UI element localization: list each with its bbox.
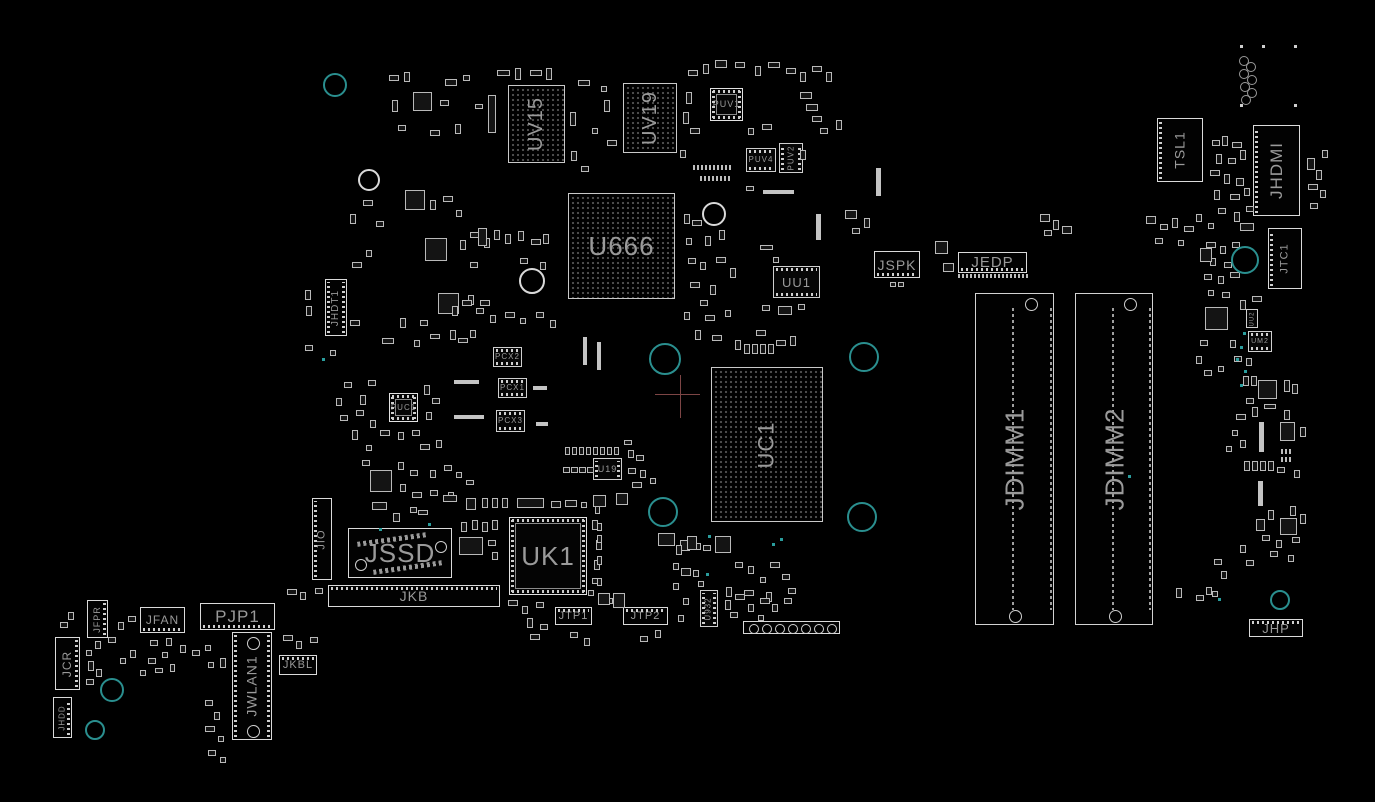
smd-part [1196, 214, 1202, 222]
smd-part [1224, 174, 1230, 184]
component-label: TSL1 [1173, 131, 1187, 168]
origin-crosshair [655, 394, 700, 395]
smd-part [678, 615, 684, 622]
smd-part [588, 590, 594, 596]
smd-part [684, 312, 690, 320]
smd-part [531, 239, 541, 245]
smd-part [776, 340, 786, 346]
origin-crosshair [680, 375, 681, 418]
ssd-screw-hole [435, 541, 447, 553]
smd-part [283, 635, 293, 641]
smd-part [632, 482, 642, 488]
smd-part [715, 536, 731, 553]
smd-part [1214, 190, 1220, 200]
smd-part [773, 257, 779, 263]
component-jdimm1[interactable]: JDIMM1 [975, 293, 1054, 625]
smd-part [1226, 446, 1232, 452]
component-label: JDIMM2 [1101, 408, 1127, 511]
smd-part [480, 300, 490, 306]
smd-part [650, 478, 656, 484]
test-point [1262, 45, 1265, 48]
smd-part [673, 583, 679, 590]
component-label: UV19 [640, 91, 660, 145]
pin-row [67, 700, 70, 735]
smd-part [420, 444, 430, 450]
connector-hole [814, 624, 824, 634]
test-point [1128, 475, 1131, 478]
pin-row [512, 590, 584, 593]
component-pjp1[interactable]: PJP1 [200, 603, 275, 630]
smd-part [826, 72, 832, 82]
smd-part [695, 330, 701, 340]
smd-part [762, 305, 770, 311]
component-pcx3[interactable]: PCX3 [496, 410, 525, 432]
smd-part [470, 262, 478, 268]
smd-part [488, 95, 496, 133]
smd-part [1292, 537, 1300, 543]
smd-part [392, 100, 398, 112]
test-point [1243, 332, 1246, 335]
component-jdimm2[interactable]: JDIMM2 [1075, 293, 1153, 625]
smd-part [1246, 358, 1252, 366]
smd-part [1252, 407, 1258, 417]
smd-part [475, 104, 483, 109]
smd-part [607, 447, 612, 455]
trace-segment [536, 422, 548, 426]
smd-part [698, 581, 704, 587]
component-jcr[interactable]: JCR [55, 637, 80, 690]
smd-part [690, 128, 700, 134]
smd-part [1218, 276, 1224, 284]
smd-part [86, 679, 94, 685]
smd-part [214, 712, 220, 720]
component-label: PUC1 [391, 404, 416, 412]
pin-row [143, 628, 182, 631]
smd-part [1221, 571, 1227, 579]
pin-row [776, 293, 817, 296]
smd-part [1262, 535, 1270, 541]
smd-part [436, 440, 442, 448]
smd-part [305, 290, 311, 300]
component-label: JIO [317, 529, 328, 549]
smd-part [482, 498, 488, 508]
smd-part [812, 116, 822, 122]
test-point [1244, 370, 1247, 373]
smd-part [705, 315, 715, 321]
test-point [379, 528, 382, 531]
smd-part [812, 66, 822, 72]
smd-part [1230, 340, 1236, 348]
component-jhdmi[interactable]: JHDMI [1253, 125, 1300, 216]
smd-part [748, 604, 754, 612]
component-puv1[interactable]: PUV1 [710, 88, 743, 121]
smd-part [581, 502, 587, 508]
smd-part [748, 128, 754, 135]
component-jssd[interactable]: JSSD [348, 528, 452, 578]
smd-part [640, 470, 646, 478]
connector-hole [247, 637, 260, 650]
smd-part [1218, 208, 1226, 214]
smd-part [636, 455, 644, 461]
smd-part [492, 552, 498, 560]
smd-part [350, 320, 360, 326]
smd-part [470, 330, 476, 338]
smd-part [820, 128, 828, 134]
smd-part [613, 593, 625, 608]
component-um2[interactable]: UM2 [1248, 331, 1272, 352]
smd-part [414, 340, 420, 347]
component-uu2[interactable]: UU2 [1246, 309, 1258, 328]
test-point [1240, 346, 1243, 349]
smd-part [1176, 588, 1182, 598]
smd-part [1284, 410, 1290, 420]
smd-part [1294, 470, 1300, 478]
pin-row [1251, 333, 1269, 336]
component-label: PUV1 [713, 100, 741, 109]
mounting-hole [1270, 590, 1290, 610]
smd-part [1232, 142, 1242, 148]
smd-part [330, 350, 336, 356]
smd-part [205, 726, 215, 732]
smd-part [597, 578, 602, 586]
component-u19[interactable]: U19 [593, 458, 622, 480]
smd-part [712, 335, 722, 341]
smd-part [540, 624, 548, 630]
ssd-screw-hole [355, 559, 367, 571]
trace-segment [876, 168, 881, 196]
smd-part [120, 658, 126, 664]
component-jfan[interactable]: JFAN [140, 607, 185, 633]
smd-part [628, 450, 634, 458]
smd-part [1240, 300, 1246, 310]
smd-part [768, 62, 780, 68]
pin-row [749, 150, 773, 153]
smd-part [571, 467, 578, 473]
component-jhdd[interactable]: JHDD [53, 697, 72, 738]
smd-part [578, 80, 590, 86]
smd-part [571, 151, 577, 161]
component-jspk[interactable]: JSPK [874, 251, 920, 278]
smd-part [404, 72, 410, 82]
smd-part [517, 498, 544, 508]
smd-part [584, 638, 590, 646]
component-puc1[interactable]: PUC1 [389, 393, 418, 422]
pin-row [713, 116, 740, 119]
pin-row [392, 395, 415, 398]
smd-part [130, 650, 136, 658]
smd-part [366, 250, 372, 257]
smd-part [543, 234, 549, 244]
smd-part [366, 445, 372, 451]
smd-part [170, 664, 175, 672]
smd-part [362, 460, 370, 466]
smd-part [572, 447, 577, 455]
pin-row [511, 520, 514, 592]
smd-part [398, 125, 406, 131]
connector-hole [247, 725, 260, 738]
component-jio[interactable]: JIO [312, 498, 332, 580]
smd-part [550, 320, 556, 328]
smd-part [208, 662, 214, 668]
smd-part [845, 210, 857, 219]
component-label: JWLAN1 [245, 655, 259, 716]
smd-part [1040, 214, 1050, 222]
component-label: JHDMI [1268, 142, 1285, 199]
component-uv19[interactable]: UV19 [623, 83, 677, 153]
smd-part [1200, 340, 1208, 346]
mounting-hole [323, 73, 347, 97]
smd-part [692, 220, 702, 226]
smd-part [336, 398, 342, 406]
pin-row [499, 412, 522, 415]
component-jedp[interactable]: JEDP [958, 252, 1027, 273]
edge-hole-connector[interactable] [743, 621, 840, 634]
smd-part [370, 470, 392, 492]
pin-row [582, 520, 585, 592]
component-label: UK1 [521, 543, 575, 569]
smd-part [683, 598, 689, 605]
pin-row [512, 519, 584, 522]
component-label: UU2 [1249, 311, 1255, 326]
smd-part [60, 622, 68, 628]
smd-part [166, 638, 172, 646]
smd-part [445, 79, 457, 86]
smd-part [192, 650, 200, 656]
smd-part [546, 68, 552, 80]
smd-part [1264, 404, 1276, 409]
smd-part [1292, 384, 1298, 394]
smd-part [508, 600, 518, 606]
smd-part [592, 128, 598, 134]
smd-part [410, 507, 417, 513]
component-puv4[interactable]: PUV4 [746, 148, 776, 172]
trace-segment [454, 415, 484, 419]
smd-part [412, 492, 422, 498]
smd-part [760, 344, 766, 354]
dimm-pin-line [1149, 308, 1151, 610]
component-jhdt1[interactable]: JHDT1 [325, 279, 347, 336]
smd-part [205, 700, 213, 706]
smd-part [150, 640, 158, 646]
mounting-hole [100, 678, 124, 702]
component-u666[interactable]: U666 [568, 193, 675, 299]
smd-part [1240, 545, 1246, 553]
component-label: PJP1 [215, 608, 260, 625]
pin-row [103, 603, 106, 635]
smd-part [350, 214, 356, 224]
smd-part [458, 338, 468, 343]
component-jtp2[interactable]: JTP2 [623, 607, 668, 625]
smd-part [306, 306, 312, 316]
component-pcx2[interactable]: PCX2 [493, 347, 522, 367]
pin-row [776, 268, 817, 271]
smd-part [68, 612, 74, 620]
smd-part [1214, 559, 1222, 565]
smd-part [472, 520, 478, 530]
component-label: JSPK [877, 258, 916, 272]
smd-part [425, 238, 447, 261]
smd-part [490, 315, 496, 323]
component-label: JHDT1 [331, 289, 341, 325]
smd-part [798, 304, 805, 310]
smd-part [1322, 150, 1328, 158]
smd-part [520, 258, 528, 264]
smd-part [363, 200, 373, 206]
smd-part [461, 522, 467, 532]
component-jtc1[interactable]: JTC1 [1268, 228, 1302, 289]
smd-part [1184, 226, 1194, 232]
smd-part [305, 345, 313, 351]
smd-part [752, 344, 758, 354]
component-label: U932 [705, 597, 713, 620]
smd-part [1236, 414, 1246, 420]
smd-part [688, 258, 696, 264]
smd-part [658, 533, 675, 546]
smd-part [1252, 296, 1262, 302]
smd-part [398, 462, 404, 470]
connector-hole [762, 624, 772, 634]
smd-part [536, 312, 544, 318]
dimm-key-hole [1009, 610, 1022, 623]
smd-part [476, 308, 484, 314]
component-jwlan1[interactable]: JWLAN1 [232, 632, 272, 740]
smd-part [565, 447, 570, 455]
pin-row [713, 90, 740, 93]
smd-part [788, 588, 796, 594]
smd-part [466, 498, 476, 510]
component-jhp[interactable]: JHP [1249, 619, 1303, 637]
pin-row [1159, 121, 1162, 179]
smd-part [220, 658, 226, 668]
pin-row [234, 635, 237, 737]
smd-part [760, 245, 773, 250]
component-label: PUV2 [787, 146, 795, 171]
smd-part [725, 600, 731, 610]
component-label: U19 [598, 465, 618, 474]
smd-part [1222, 136, 1228, 146]
smd-part [452, 306, 458, 316]
component-pcx1[interactable]: PCX1 [498, 378, 527, 398]
component-label: JKB [400, 589, 429, 603]
smd-part [726, 587, 732, 597]
smd-part [505, 312, 515, 318]
smd-part [1240, 150, 1246, 160]
smd-part [400, 484, 406, 492]
trace-segment [816, 214, 821, 240]
smd-part [1205, 307, 1228, 330]
smd-part [744, 344, 750, 354]
smd-part [455, 124, 461, 134]
smd-part [1210, 170, 1220, 176]
component-label: JEDP [971, 255, 1013, 270]
component-uv15[interactable]: UV15 [508, 85, 565, 163]
smd-part [426, 412, 432, 420]
mounting-hole [849, 342, 879, 372]
smd-part [1178, 240, 1184, 246]
smd-part [1244, 461, 1250, 471]
component-label: U666 [588, 233, 654, 259]
smd-part [593, 495, 606, 507]
test-point [772, 543, 775, 546]
smd-part [432, 398, 440, 404]
mounting-hole [1231, 246, 1259, 274]
smd-part [118, 622, 124, 630]
smd-part [128, 616, 136, 622]
smd-part [715, 60, 727, 68]
component-u932[interactable]: U932 [700, 590, 718, 627]
pin-row [342, 282, 345, 333]
smd-part [393, 513, 400, 522]
smd-part [430, 334, 440, 339]
smd-part [505, 234, 511, 244]
component-label: JHP [1262, 622, 1290, 635]
mounting-hole [702, 202, 726, 226]
connector-hole [801, 624, 811, 634]
component-label: UM2 [1251, 338, 1269, 345]
smd-part [444, 465, 452, 471]
mounting-hole [358, 169, 380, 191]
smd-part [1218, 366, 1224, 372]
component-jtp1[interactable]: JTP1 [555, 607, 592, 625]
smd-part [681, 568, 691, 576]
smd-part [1212, 140, 1220, 146]
smd-part [1212, 591, 1218, 597]
smd-part [1320, 190, 1326, 198]
smd-part [719, 230, 725, 240]
smd-part [300, 592, 306, 600]
pin-row [781, 146, 784, 170]
smd-part [1258, 380, 1277, 399]
component-uu1[interactable]: UU1 [773, 266, 820, 298]
smd-part [703, 64, 709, 74]
smd-part [735, 62, 745, 68]
smd-part [518, 231, 524, 241]
component-tsl1[interactable]: TSL1 [1157, 118, 1203, 182]
component-uk1[interactable]: UK1 [509, 517, 587, 595]
smd-part [772, 604, 778, 612]
smd-part [782, 574, 790, 580]
connector-hole [827, 624, 837, 634]
component-jfpr[interactable]: JFPR [87, 600, 108, 638]
smd-part [205, 645, 211, 651]
smd-part [515, 68, 521, 80]
smd-part [459, 537, 483, 555]
test-point [706, 573, 709, 576]
test-point [1240, 384, 1243, 387]
smd-part [565, 500, 577, 507]
component-label: JFAN [146, 614, 179, 626]
smd-part [1172, 218, 1178, 228]
smd-part [597, 523, 602, 531]
smd-part [598, 593, 610, 605]
smd-part [1251, 376, 1257, 386]
smd-part [1216, 154, 1222, 164]
smd-part [527, 618, 533, 628]
component-jkb[interactable]: JKB [328, 585, 500, 607]
smd-part [1196, 595, 1204, 601]
smd-part [1230, 194, 1240, 200]
smd-part [1196, 356, 1202, 364]
smd-part [530, 634, 540, 640]
smd-part [890, 282, 896, 287]
smd-part [586, 447, 591, 455]
smd-part [463, 75, 470, 81]
smd-part [412, 430, 420, 436]
pin-strip [693, 165, 731, 170]
component-jkbl[interactable]: JKBL [279, 655, 317, 675]
component-uc1[interactable]: UC1 [711, 367, 823, 522]
smd-part [344, 382, 352, 388]
